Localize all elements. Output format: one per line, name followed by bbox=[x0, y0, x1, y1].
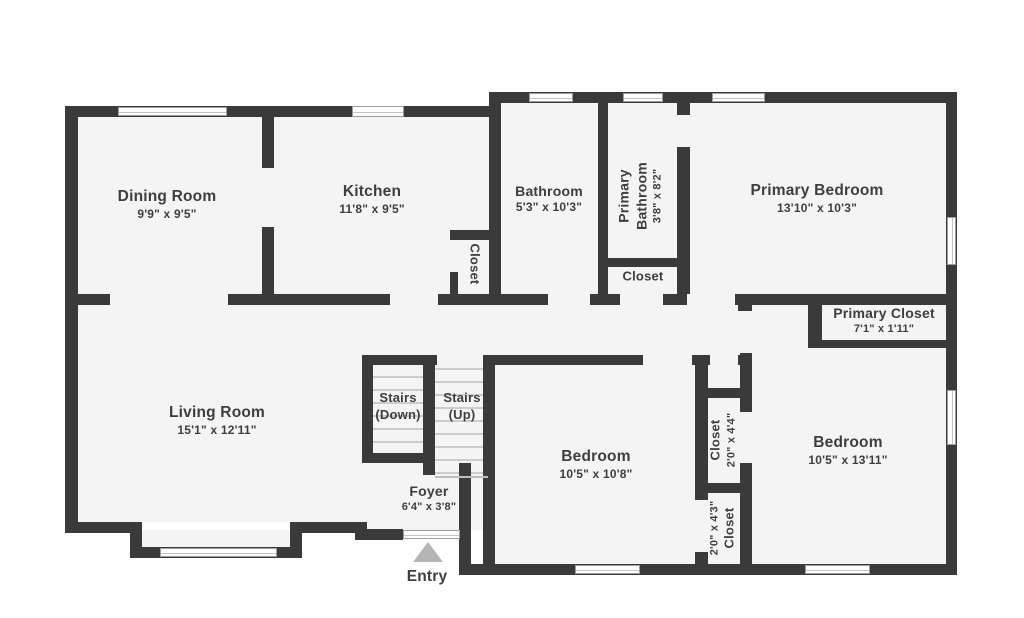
room-name: Bathroom bbox=[515, 182, 583, 200]
window bbox=[623, 93, 663, 102]
window bbox=[947, 390, 956, 445]
room-label-primary-bathroom-closet: Closet bbox=[623, 269, 664, 286]
room-label-bedroom-middle: Bedroom 10'5" x 10'8" bbox=[559, 447, 632, 483]
room-label-dining-room: Dining Room 9'9" x 9'5" bbox=[118, 187, 217, 223]
wall bbox=[663, 294, 687, 305]
room-label-primary-bathroom: Primary Bathroom 3'8" x 8'2" bbox=[615, 162, 666, 230]
window bbox=[805, 565, 870, 574]
room-label-foyer: Foyer 6'4" x 3'8" bbox=[402, 482, 457, 514]
window bbox=[118, 107, 227, 116]
wall bbox=[262, 227, 274, 297]
window bbox=[575, 565, 640, 574]
room-name: Closet bbox=[623, 269, 664, 286]
room-name-line2: Bathroom bbox=[633, 162, 651, 230]
room-name: Bedroom bbox=[559, 447, 632, 467]
room-label-kitchen: Kitchen 11'8" x 9'5" bbox=[339, 182, 405, 218]
wall bbox=[598, 258, 690, 267]
wall bbox=[65, 522, 142, 533]
wall bbox=[362, 355, 373, 463]
wall bbox=[459, 463, 471, 575]
room-name-line2: (Down) bbox=[375, 407, 420, 424]
room-dims: 2'0" x 4'4" bbox=[724, 413, 738, 468]
room-name-line1: Stairs bbox=[375, 390, 420, 407]
room-name: Primary Closet bbox=[833, 304, 935, 322]
wall bbox=[362, 453, 435, 463]
entry-label: Entry bbox=[407, 567, 448, 587]
room-dims: 9'9" x 9'5" bbox=[118, 207, 217, 223]
wall bbox=[483, 355, 495, 575]
wall bbox=[695, 355, 708, 500]
window bbox=[160, 548, 277, 557]
wall bbox=[738, 355, 752, 365]
room-label-bedroom-right: Bedroom 10'5" x 13'11" bbox=[808, 433, 887, 469]
room-dims: 7'1" x 1'11" bbox=[833, 322, 935, 336]
wall bbox=[438, 294, 548, 305]
room-name: Kitchen bbox=[339, 182, 405, 202]
window bbox=[712, 93, 765, 102]
room-label-stairs-down: Stairs (Down) bbox=[375, 390, 420, 424]
entry-arrow-icon bbox=[413, 542, 443, 562]
room-dims: 13'10" x 10'3" bbox=[750, 201, 883, 217]
room-name: Primary Bedroom bbox=[750, 181, 883, 201]
room-dims: 10'5" x 13'11" bbox=[808, 453, 887, 469]
wall bbox=[228, 294, 390, 305]
wall bbox=[695, 388, 752, 398]
room-dims: 6'4" x 3'8" bbox=[402, 500, 457, 514]
wall bbox=[677, 147, 690, 294]
room-label-kitchen-closet: Closet bbox=[466, 244, 483, 285]
window bbox=[403, 530, 460, 539]
window bbox=[529, 93, 573, 102]
room-name: Living Room bbox=[169, 403, 265, 423]
room-name: Closet bbox=[466, 244, 483, 285]
wall bbox=[740, 463, 752, 568]
room-label-stairs-up: Stairs (Up) bbox=[443, 390, 480, 424]
room-dims: 10'5" x 10'8" bbox=[559, 467, 632, 483]
wall bbox=[695, 483, 752, 493]
wall bbox=[489, 92, 501, 305]
window bbox=[947, 217, 956, 265]
wall bbox=[590, 294, 620, 305]
room-label-closet-upper: Closet 2'0" x 4'4" bbox=[707, 413, 738, 468]
room-dims: 11'8" x 9'5" bbox=[339, 202, 405, 218]
wall bbox=[677, 103, 690, 115]
room-name-line2: (Up) bbox=[443, 407, 480, 424]
room-name: Bedroom bbox=[808, 433, 887, 453]
room-name: Foyer bbox=[402, 482, 457, 500]
room-name: Closet bbox=[722, 501, 739, 556]
room-dims: 5'3" x 10'3" bbox=[515, 200, 583, 216]
wall bbox=[262, 117, 274, 168]
room-dims: 3'8" x 8'2" bbox=[651, 162, 665, 230]
wall bbox=[362, 355, 437, 365]
stair-divider-line bbox=[435, 476, 488, 478]
room-dims: 15'1" x 12'11" bbox=[169, 423, 265, 439]
wall bbox=[946, 92, 957, 575]
room-name: Dining Room bbox=[118, 187, 217, 207]
floor-plan: Dining Room 9'9" x 9'5" Kitchen 11'8" x … bbox=[0, 0, 1024, 618]
wall bbox=[490, 355, 643, 365]
wall bbox=[459, 564, 957, 575]
room-name: Entry bbox=[407, 567, 448, 587]
wall bbox=[808, 340, 946, 348]
wall bbox=[65, 294, 110, 305]
room-label-primary-bedroom: Primary Bedroom 13'10" x 10'3" bbox=[750, 181, 883, 217]
room-label-closet-lower: 2'0" x 4'3" Closet bbox=[707, 501, 738, 556]
window bbox=[352, 106, 404, 117]
room-dims: 2'0" x 4'3" bbox=[707, 501, 721, 556]
room-label-living-room: Living Room 15'1" x 12'11" bbox=[169, 403, 265, 439]
room-name: Closet bbox=[707, 413, 724, 468]
room-name-line1: Stairs bbox=[443, 390, 480, 407]
wall bbox=[65, 106, 78, 533]
room-name-line1: Primary bbox=[615, 162, 633, 230]
wall bbox=[692, 355, 710, 365]
room-label-bathroom: Bathroom 5'3" x 10'3" bbox=[515, 182, 583, 216]
wall bbox=[460, 529, 471, 540]
room-label-primary-closet: Primary Closet 7'1" x 1'11" bbox=[833, 304, 935, 336]
wall bbox=[450, 230, 492, 240]
wall bbox=[290, 522, 367, 533]
